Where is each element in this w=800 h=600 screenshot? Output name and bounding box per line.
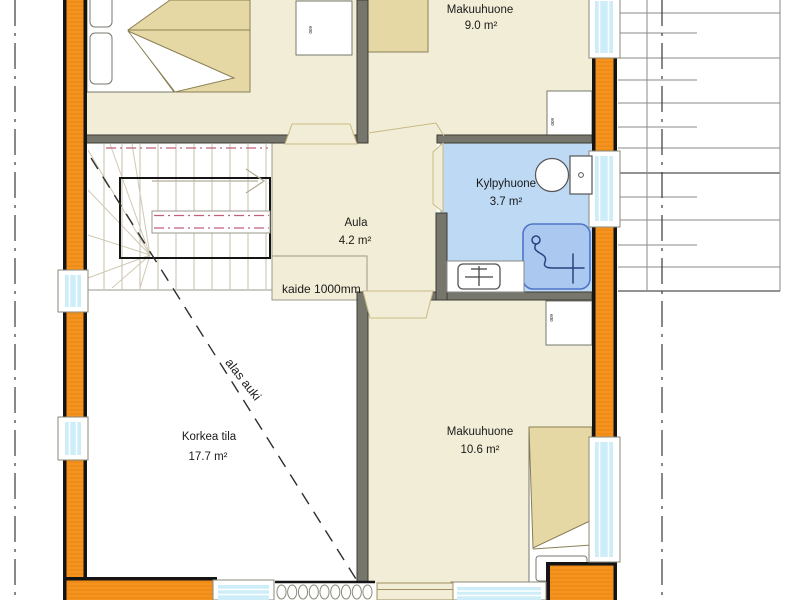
- wardrobe: [546, 301, 592, 345]
- wardrobe: [547, 91, 592, 135]
- window-left-2: [58, 417, 88, 460]
- door-bedroom-top-left: [285, 124, 357, 144]
- pillow: [90, 33, 112, 84]
- cabinet-tag: 600: [549, 314, 554, 322]
- floor-plan-drawing: Makuuhuone 9.0 m² Kylpyhuone 3.7 m² Aula…: [0, 0, 800, 600]
- double-bed: [87, 0, 250, 92]
- wall-v-top: [357, 0, 368, 143]
- window-right-1: [589, 0, 620, 58]
- label-bathroom-area: 3.7 m²: [490, 196, 523, 208]
- wall-bottom-left-orange: [67, 581, 217, 600]
- corner-opening-floor: [368, 130, 437, 144]
- window-bottom-2: [451, 582, 546, 600]
- cabinet-tag: 600: [550, 118, 555, 126]
- insulation-section: [275, 581, 375, 600]
- cabinet-tag: 600: [308, 26, 313, 34]
- sill-panel: [377, 583, 453, 600]
- shower: [523, 224, 590, 289]
- label-bedroom-10-area: 10.6 m²: [461, 444, 500, 456]
- sink: [447, 261, 524, 292]
- label-railing-note: kaide 1000mm: [282, 282, 361, 296]
- window-left-1: [58, 270, 88, 312]
- label-aula-area: 4.2 m²: [339, 235, 372, 247]
- pillow: [90, 0, 112, 27]
- stair-handrail: [152, 211, 270, 233]
- label-aula-name: Aula: [344, 217, 368, 229]
- window-right-2: [589, 151, 620, 227]
- single-bed: [529, 427, 592, 583]
- wardrobe: [296, 1, 352, 55]
- label-bedroom-9-area: 9.0 m²: [465, 20, 498, 32]
- label-korkea-area: 17.7 m²: [189, 451, 228, 463]
- bed-top-partial: [368, 0, 428, 52]
- wall-corner-orange: [550, 566, 614, 600]
- wall-v-bottom: [357, 292, 368, 583]
- wall-v-bath-left: [436, 213, 447, 300]
- window-right-3: [589, 437, 620, 562]
- label-korkea-name: Korkea tila: [182, 431, 237, 443]
- label-bedroom-9-name: Makuuhuone: [447, 4, 514, 16]
- label-bedroom-10-name: Makuuhuone: [447, 426, 514, 438]
- wall-h-top-left: [86, 135, 292, 143]
- wall-right-orange-1: [596, 58, 614, 152]
- floor-plan-page: Makuuhuone 9.0 m² Kylpyhuone 3.7 m² Aula…: [0, 0, 800, 600]
- wall-right-orange-2: [596, 226, 614, 438]
- door-bedroom-10: [363, 291, 433, 318]
- door-bathroom: [433, 143, 443, 212]
- wall-h-bath-top: [437, 135, 592, 143]
- label-bathroom-name: Kylpyhuone: [476, 178, 536, 190]
- window-bottom-1: [213, 580, 274, 600]
